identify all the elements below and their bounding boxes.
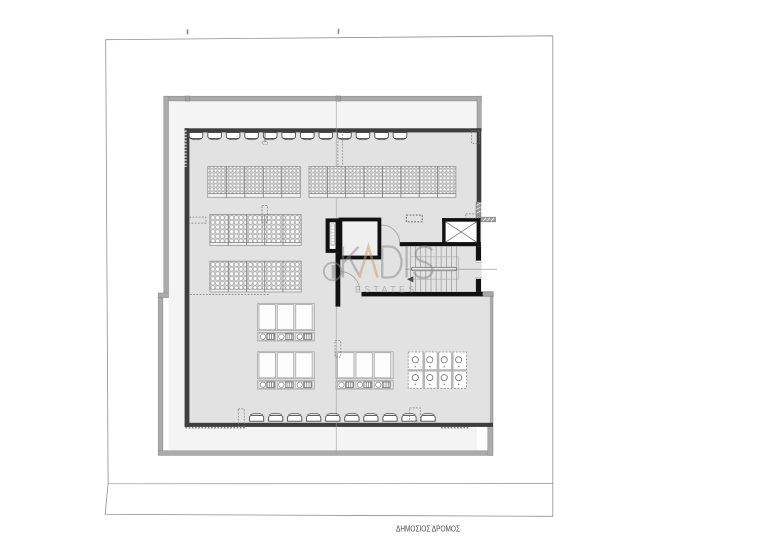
svg-text:ESTATES: ESTATES: [355, 285, 418, 295]
svg-text:ΔΗΜΟΣΙΟΣ ΔΡΟΜΟΣ: ΔΗΜΟΣΙΟΣ ΔΡΟΜΟΣ: [396, 524, 460, 534]
